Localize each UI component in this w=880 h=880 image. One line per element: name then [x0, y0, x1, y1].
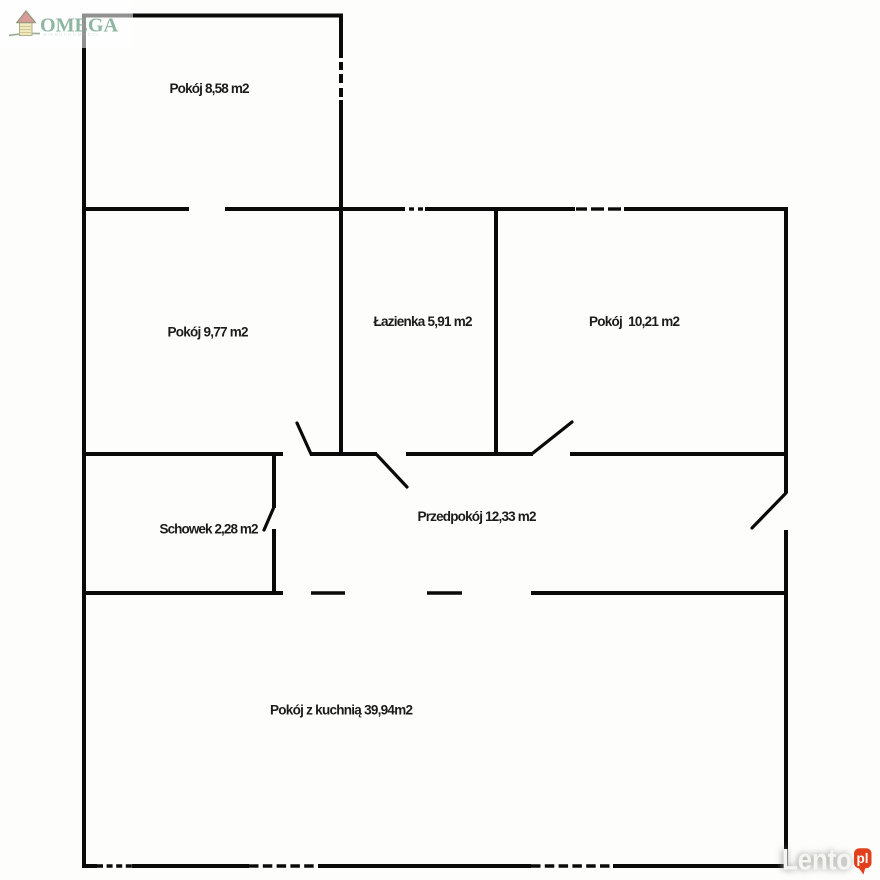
svg-text:Pokój 8,58 m2: Pokój 8,58 m2	[170, 81, 250, 96]
svg-text:pl: pl	[857, 851, 869, 866]
svg-text:Przedpokój 12,33 m2: Przedpokój 12,33 m2	[418, 509, 537, 524]
svg-text:Schowek 2,28 m2: Schowek 2,28 m2	[160, 522, 259, 537]
svg-text:Lento: Lento	[782, 844, 852, 877]
svg-text:NIERUCHOMOŚCI: NIERUCHOMOŚCI	[43, 32, 99, 37]
svg-text:Łazienka 5,91 m2: Łazienka 5,91 m2	[374, 314, 473, 329]
svg-text:Pokój 9,77 m2: Pokój 9,77 m2	[168, 325, 249, 340]
svg-text:Pokój 10,21 m2: Pokój 10,21 m2	[589, 314, 680, 329]
svg-text:Pokój z kuchnią 39,94m2: Pokój z kuchnią 39,94m2	[270, 703, 413, 718]
